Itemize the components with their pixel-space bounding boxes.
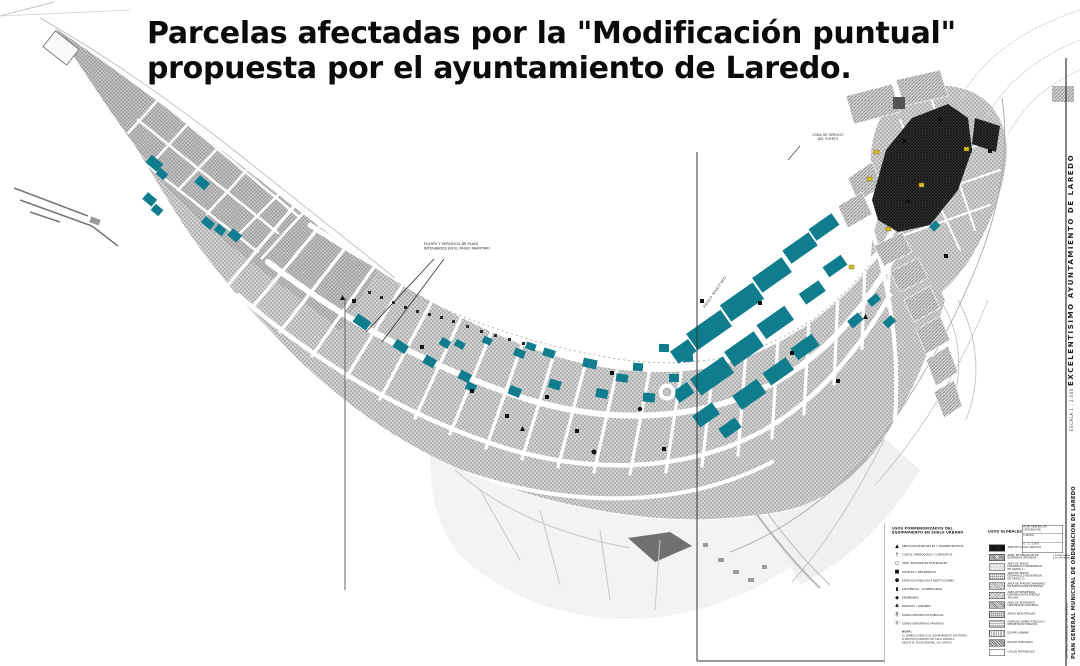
scanned-plan-page: PASEO MARITIMO Parcelas afectadas por la… bbox=[0, 0, 1080, 666]
legend-panel: USOS PORMENORIZADOS DEL EQUIPAMIENTO EN … bbox=[884, 523, 1064, 663]
legend-item-label: EQUIPO PORTUARIO bbox=[1008, 641, 1047, 644]
legend-equipamiento-header: USOS PORMENORIZADOS DEL EQUIPAMIENTO EN … bbox=[892, 527, 963, 535]
legend-globales-item: AREA DE RESIDENCIA UNIFAMILIAR AGRUPADA bbox=[989, 600, 1080, 610]
legend-equipamiento-item: ■ HOTELES Y RESIDENCIAS bbox=[892, 568, 970, 577]
harbour-piers bbox=[14, 188, 118, 246]
legend-equipamiento-item: ♣ PARQUES Y JARDINES bbox=[892, 602, 970, 611]
legend-pattern-swatch bbox=[989, 592, 1005, 599]
legend-equipamiento-item: ▲ SERVICIOS MUNICIPALES Y ADMINISTRATIVO… bbox=[892, 542, 970, 551]
legend-globales-item: AREA DE NUEVO DESARROLLO RESIDENCIAL EN … bbox=[989, 562, 1080, 572]
legend-item-label: HOTELES Y RESIDENCIAS bbox=[902, 571, 936, 574]
margin-ayuntamiento-subtitle: ESCALA 1 : 2.000 bbox=[1069, 388, 1074, 431]
legend-equipamiento-item: ◆ ENSEÑANZA bbox=[892, 594, 970, 603]
legend-symbol-icon: Ⓑ bbox=[892, 613, 902, 618]
legend-item-label: ESPACIOS LIBRES PUBLICOS Y DEPORTIVOS PU… bbox=[1008, 621, 1047, 626]
legend-symbol-icon: ◆ bbox=[892, 595, 902, 600]
legend-symbol-icon: ▲ bbox=[892, 544, 902, 549]
legend-item-label: AREA DE NUEVO DESARROLLO RESIDENCIAL EN … bbox=[1008, 572, 1047, 580]
legend-pattern-swatch bbox=[989, 620, 1005, 627]
legend-equipamiento-item: ● EDIFICIOS PUBLICOS E INSTITUCIONES bbox=[892, 576, 970, 585]
legend-item-label: AREA DE NUEVO DESARROLLO RESIDENCIAL EN … bbox=[1008, 563, 1047, 571]
legend-item-label: AREAS INDUSTRIALES bbox=[1008, 613, 1047, 616]
legend-equipamiento-list: ▲ SERVICIOS MUNICIPALES Y ADMINISTRATIVO… bbox=[892, 542, 970, 628]
title-line-2: propuesta por el ayuntamiento de Laredo. bbox=[147, 51, 956, 86]
spit-building bbox=[43, 31, 79, 65]
legend-item-label: AREA DE APROVECHAMIENTO EN EDIFICACION E… bbox=[1008, 583, 1047, 588]
legend-globales-item: ESPACIOS LIBRES PUBLICOS Y DEPORTIVOS PU… bbox=[989, 619, 1080, 629]
legend-item-label: PARQUES Y JARDINES bbox=[902, 605, 931, 608]
legend-item-label: AREA DE CASCO ANTIGUO bbox=[1008, 546, 1047, 549]
legend-pattern-swatch bbox=[989, 582, 1005, 589]
legend-symbol-icon: ○ bbox=[892, 561, 902, 566]
legend-item-label: ASISTENCIAL - DISPENSARIOS bbox=[902, 588, 942, 591]
legend-symbol-icon: ■ bbox=[892, 570, 902, 575]
legend-pattern-swatch bbox=[989, 649, 1005, 656]
playa-annotation: EQUIPO Y SERVICIOS DE PLAYA INTEGRADOS E… bbox=[424, 242, 490, 251]
title-line-1: Parcelas afectadas por la "Modificación … bbox=[147, 16, 956, 51]
legend-symbol-icon: ● bbox=[892, 578, 902, 583]
legend-equipamiento-item: ▮ ASISTENCIAL - DISPENSARIOS bbox=[892, 585, 970, 594]
legend-item-label: ZONAS DEPORTIVAS PUBLICAS bbox=[902, 613, 943, 616]
legend-globales-item: CALLES PEATONALES bbox=[989, 648, 1080, 658]
legend-pattern-swatch bbox=[989, 611, 1005, 618]
puerto-annotation: ZONA DE SERVICIO DEL PUERTO bbox=[788, 133, 868, 141]
legend-item-label: ZONA DE ENSANCHE EN EXTENSION INTENSIVA bbox=[1008, 555, 1047, 560]
legend-symbol-icon: ⓓ bbox=[892, 621, 902, 626]
legend-item-note: NUEVAS AREAS INCORPORADAS bbox=[1054, 555, 1075, 559]
legend-pattern-swatch bbox=[989, 563, 1005, 570]
legend-globales-header: USOS GLOBALES bbox=[988, 530, 1022, 534]
playa-annotation-line2: INTEGRADOS EN EL PASEO MARITIMO bbox=[424, 247, 490, 252]
legend-item-label: AREA DE RESIDENCIA UNIFAMILIAR AGRUPADA bbox=[1008, 602, 1047, 607]
legend-globales-item: AREA DE CASCO ANTIGUO bbox=[989, 543, 1080, 553]
legend-equipamiento-item: † CULTOS, PARROQUIAS Y CONVENTOS bbox=[892, 551, 970, 560]
legend-item-label: EDIFICIOS PUBLICOS E INSTITUCIONES bbox=[902, 579, 954, 582]
roundabout bbox=[659, 384, 676, 401]
legend-item-label: AREA DE RESIDENCIA UNIFAMILIAR EN PARCEL… bbox=[1008, 591, 1047, 599]
legend-note: NOTA: EL SIMBOLO INDICA EL EQUIPAMIENTO … bbox=[902, 631, 967, 645]
legend-symbol-icon: ♣ bbox=[892, 604, 902, 609]
legend-pattern-swatch bbox=[989, 630, 1005, 637]
legend-equipamiento-item: ○ UNID. PEATONALES ESTANCIALES bbox=[892, 559, 970, 568]
margin-ayuntamiento-title: EXCELENTISIMO AYUNTAMIENTO DE LAREDO bbox=[1067, 154, 1075, 386]
legend-globales-item: EQUIPO PORTUARIO bbox=[989, 638, 1080, 648]
legend-globales-item: AREA DE NUEVO DESARROLLO RESIDENCIAL EN … bbox=[989, 572, 1080, 582]
legend-equipamiento-item: ⓓ ZONAS DEPORTIVAS PRIVADAS bbox=[892, 619, 970, 628]
legend-globales-item: 5 ZONA DE ENSANCHE EN EXTENSION INTENSIV… bbox=[989, 553, 1080, 563]
legend-item-label: CULTOS, PARROQUIAS Y CONVENTOS bbox=[902, 553, 952, 556]
legend-symbol-icon: ▮ bbox=[892, 587, 902, 592]
legend-pattern-swatch bbox=[989, 544, 1005, 551]
legend-globales-item: AREA DE APROVECHAMIENTO EN EDIFICACION E… bbox=[989, 581, 1080, 591]
legend-pattern-swatch: 5 bbox=[989, 554, 1005, 561]
legend-globales-item: AREA DE RESIDENCIA UNIFAMILIAR EN PARCEL… bbox=[989, 591, 1080, 601]
legend-item-label: CALLES PEATONALES bbox=[1008, 651, 1047, 654]
legend-pattern-swatch bbox=[989, 601, 1005, 608]
legend-item-label: SERVICIOS MUNICIPALES Y ADMINISTRATIVOS bbox=[902, 545, 963, 548]
legend-equipamiento-item: Ⓑ ZONAS DEPORTIVAS PUBLICAS bbox=[892, 611, 970, 620]
legend-symbol-icon: † bbox=[892, 552, 902, 557]
legend-globales-list: AREA DE CASCO ANTIGUO 5 ZONA DE ENSANCHE… bbox=[989, 543, 1080, 657]
legend-globales-item: AREAS INDUSTRIALES bbox=[989, 610, 1080, 620]
legend-item-label: UNID. PEATONALES ESTANCIALES bbox=[902, 562, 947, 565]
legend-item-label: EQUIPO URBANO bbox=[1008, 632, 1047, 635]
legend-item-label: ZONAS DEPORTIVAS PRIVADAS bbox=[902, 622, 944, 625]
puerto-annotation-line2: DEL PUERTO bbox=[788, 137, 868, 141]
legend-pattern-swatch bbox=[989, 573, 1005, 580]
legend-item-label: ENSEÑANZA bbox=[902, 596, 919, 599]
legend-globales-item: EQUIPO URBANO bbox=[989, 629, 1080, 639]
scan-edges bbox=[0, 2, 130, 16]
page-title: Parcelas afectadas por la "Modificación … bbox=[147, 16, 956, 86]
legend-pattern-swatch bbox=[989, 639, 1005, 646]
